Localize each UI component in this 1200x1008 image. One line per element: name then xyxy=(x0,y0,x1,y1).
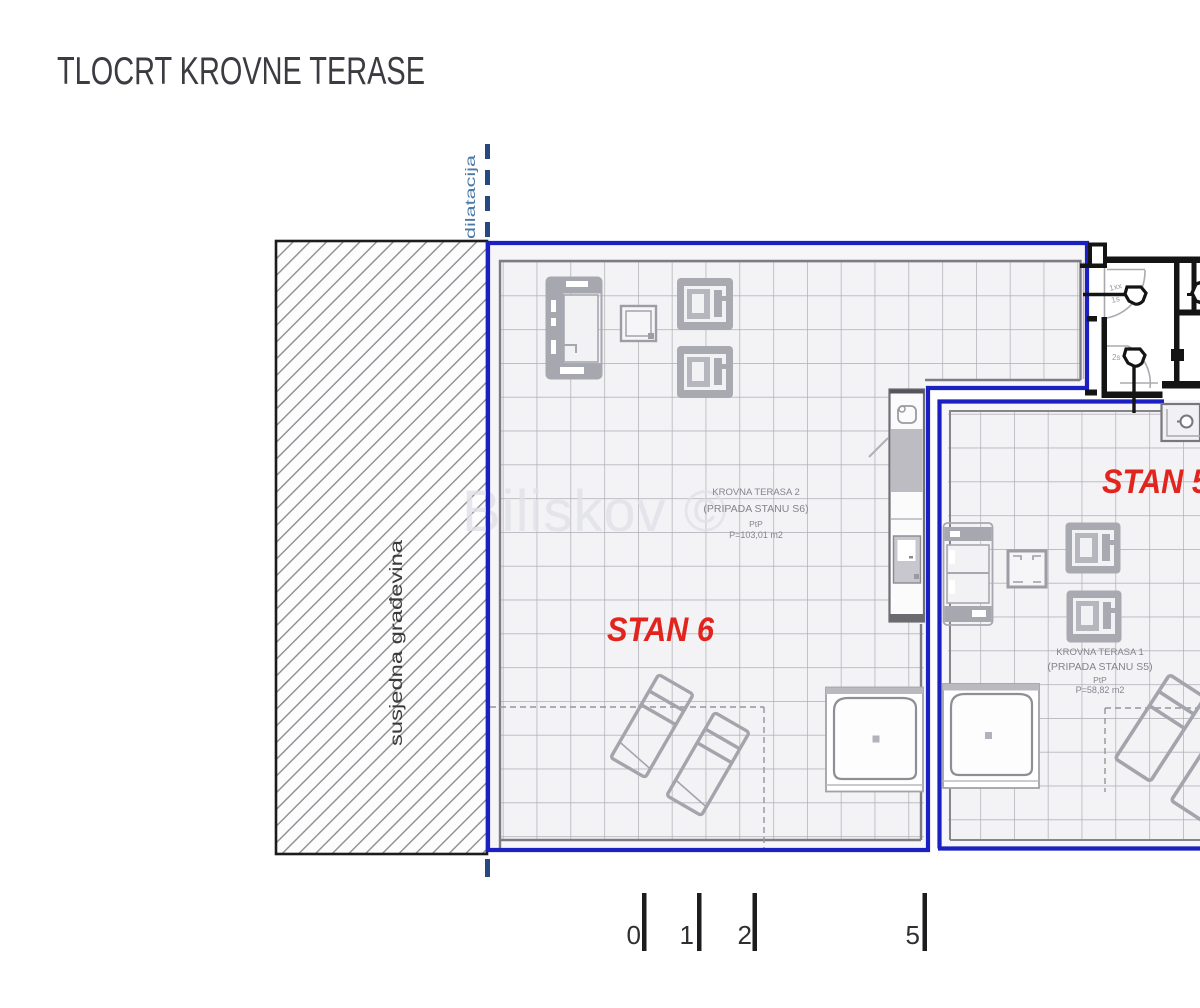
svg-text:5: 5 xyxy=(906,920,920,950)
svg-text:Biliskov ©: Biliskov © xyxy=(462,479,727,544)
svg-text:1: 1 xyxy=(680,920,694,950)
svg-text:KROVNA TERASA 2: KROVNA TERASA 2 xyxy=(712,487,799,498)
svg-text:KROVNA TERASA 1: KROVNA TERASA 1 xyxy=(1056,647,1143,658)
svg-text:STAN 5: STAN 5 xyxy=(1102,463,1200,501)
svg-text:PtP: PtP xyxy=(1093,675,1107,685)
svg-text:dilatacija: dilatacija xyxy=(462,155,478,239)
svg-text:2: 2 xyxy=(738,920,752,950)
svg-text:2s: 2s xyxy=(1112,353,1120,362)
svg-text:STAN 6: STAN 6 xyxy=(607,611,715,649)
svg-text:PtP: PtP xyxy=(749,519,763,529)
svg-text:susjedna građevina: susjedna građevina xyxy=(386,540,406,746)
svg-text:(PRIPADA STANU S5): (PRIPADA STANU S5) xyxy=(1047,661,1152,673)
svg-text:TLOCRT KROVNE TERASE: TLOCRT KROVNE TERASE xyxy=(57,50,425,93)
svg-text:P=103,01 m2: P=103,01 m2 xyxy=(729,530,783,540)
svg-text:0: 0 xyxy=(627,920,641,950)
svg-text:(PRIPADA STANU S6): (PRIPADA STANU S6) xyxy=(703,503,808,515)
svg-text:P=58,82 m2: P=58,82 m2 xyxy=(1076,685,1125,695)
